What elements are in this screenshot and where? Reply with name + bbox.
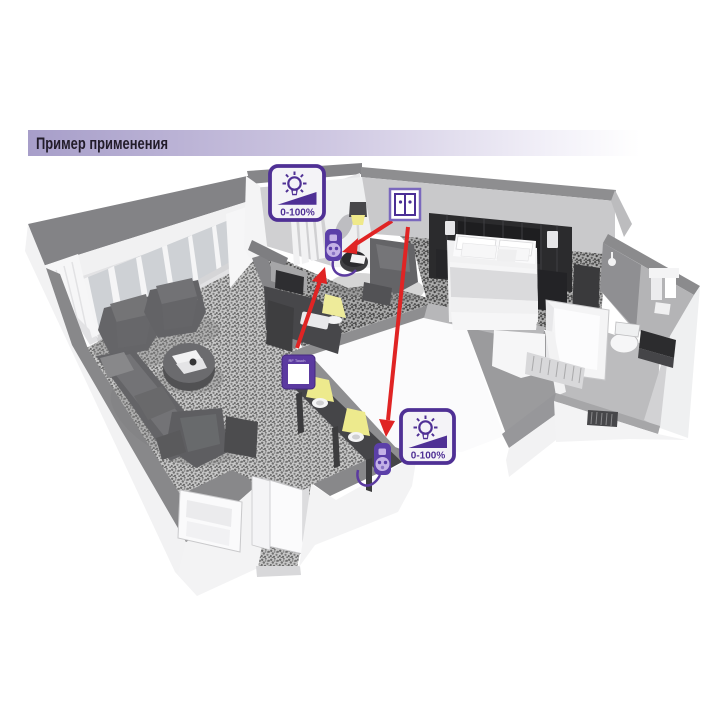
svg-text:0-100%: 0-100% [280, 208, 315, 219]
svg-text:RF Touch: RF Touch [288, 358, 305, 363]
svg-text:0-100%: 0-100% [411, 451, 446, 462]
svg-text:Пример применения: Пример применения [36, 135, 168, 153]
